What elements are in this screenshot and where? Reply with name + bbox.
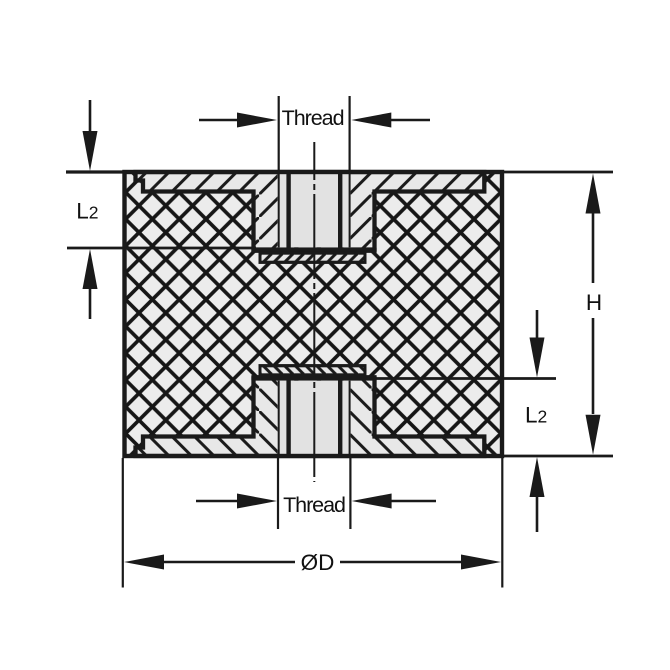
svg-text:H: H xyxy=(586,290,602,315)
svg-text:L2: L2 xyxy=(525,403,547,428)
svg-text:L2: L2 xyxy=(76,199,98,224)
svg-text:Thread: Thread xyxy=(283,493,345,517)
svg-text:ØD: ØD xyxy=(301,550,335,575)
svg-text:Thread: Thread xyxy=(282,106,344,130)
